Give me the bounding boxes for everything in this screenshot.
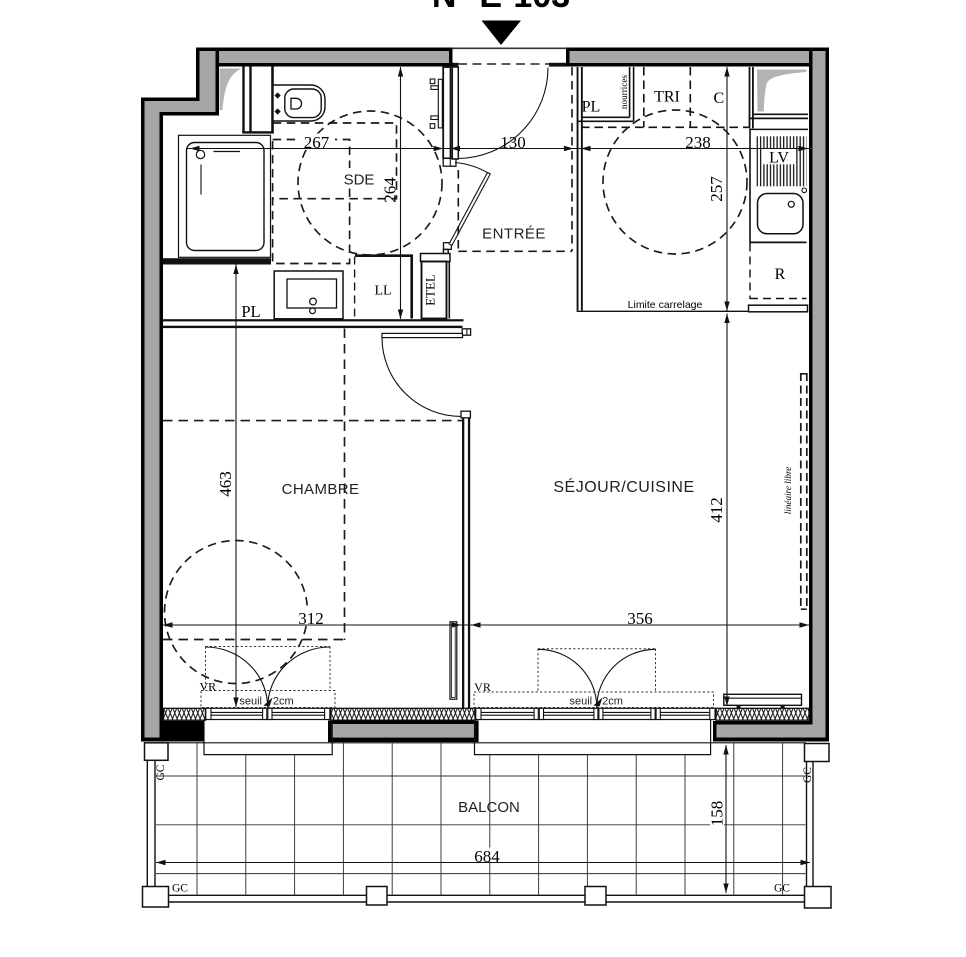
svg-text:GC: GC [774,883,790,895]
svg-text:SÉJOUR/CUISINE: SÉJOUR/CUISINE [553,477,694,496]
svg-text:C: C [713,90,724,107]
svg-text:ENTRÉE: ENTRÉE [482,226,546,243]
svg-text:seuil: seuil [569,696,592,708]
svg-text:2cm: 2cm [273,696,294,708]
svg-text:LV: LV [769,150,789,167]
svg-text:312: 312 [298,609,324,628]
svg-text:130: 130 [500,133,526,152]
svg-text:GC: GC [802,767,814,783]
svg-text:238: 238 [685,133,711,152]
svg-text:PL: PL [582,99,601,116]
svg-text:SDE: SDE [344,172,375,189]
svg-text:CHAMBRE: CHAMBRE [282,481,360,498]
svg-text:LL: LL [374,284,391,299]
svg-text:356: 356 [627,609,653,628]
svg-text:2cm: 2cm [602,696,623,708]
svg-text:seuil: seuil [239,696,262,708]
svg-text:GC: GC [155,764,167,780]
svg-text:VR: VR [474,680,491,694]
svg-text:TRI: TRI [654,89,680,106]
svg-text:PL: PL [241,302,260,321]
svg-text:linéaire libre: linéaire libre [783,467,793,515]
svg-text:158: 158 [708,801,727,827]
svg-text:VR: VR [199,680,216,694]
svg-text:N° E-103: N° E-103 [432,0,570,15]
svg-text:412: 412 [707,497,726,523]
svg-text:BALCON: BALCON [458,799,520,816]
svg-text:R: R [775,266,786,283]
svg-text:463: 463 [216,471,235,497]
svg-text:257: 257 [707,176,726,202]
svg-text:GC: GC [172,883,188,895]
svg-text:264: 264 [381,177,400,203]
svg-text:ETEL: ETEL [423,274,438,306]
svg-text:nourrices: nourrices [619,74,629,109]
svg-text:684: 684 [474,847,500,866]
svg-text:Limite carrelage: Limite carrelage [628,299,703,311]
svg-text:267: 267 [304,133,330,152]
